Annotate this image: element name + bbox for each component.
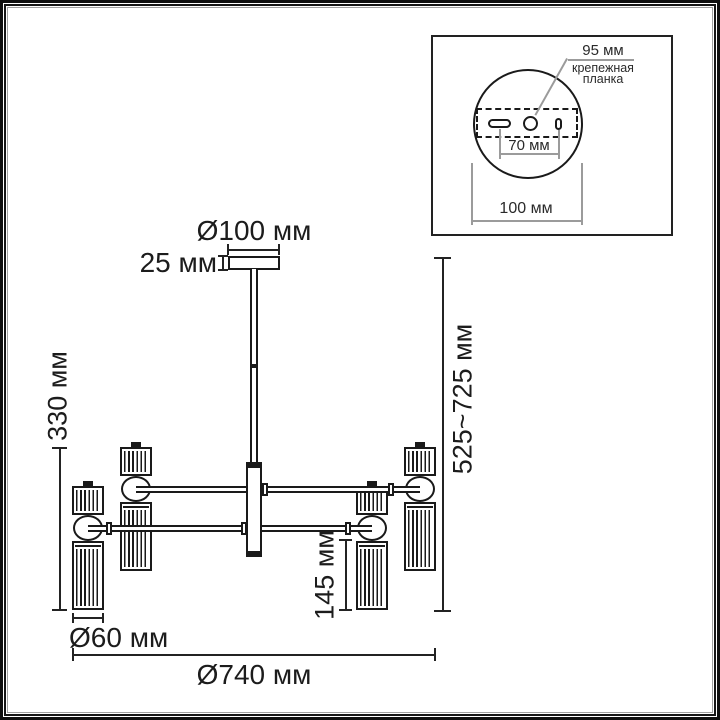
ceiling-canopy xyxy=(228,256,280,270)
dim-tick xyxy=(339,539,352,541)
lamp-stack-outer-left xyxy=(72,481,104,611)
dim-line-canopy-diameter xyxy=(228,249,280,251)
lamp-shade-top xyxy=(120,447,152,476)
dim-line-body-height xyxy=(59,448,61,611)
lamp-shade-top xyxy=(404,447,436,476)
dim-ibeam-line xyxy=(222,256,224,270)
dim-label-body-height: 330 мм xyxy=(45,351,72,441)
dimension-diagram: 95 мм крепежная планка 70 мм 100 мм xyxy=(0,0,720,720)
arm-lower xyxy=(88,525,372,532)
dim-label-hole: 95 мм xyxy=(568,43,638,58)
dim-tick xyxy=(434,257,451,259)
dim-label-slot-spacing: 70 мм xyxy=(497,138,561,153)
dim-label-canopy-diameter: Ø100 мм xyxy=(154,217,354,245)
dim-tick xyxy=(434,610,451,612)
dim-line-overall-height xyxy=(442,258,444,612)
dim-label-shade-length: 145 мм xyxy=(312,530,339,620)
dim-tick xyxy=(339,609,352,611)
shade-ribs xyxy=(408,451,432,472)
lamp-stack-inner-left xyxy=(120,442,152,572)
arm-joint-collar xyxy=(106,522,112,535)
lamp-shade-bottom xyxy=(404,502,436,571)
mount-slot-left-icon xyxy=(488,119,511,128)
lamp-shade-top xyxy=(72,486,104,515)
ext-line-100-left xyxy=(471,163,473,225)
ext-line-100-right xyxy=(581,163,583,225)
dim-line-overall-width xyxy=(73,654,435,656)
dim-tick xyxy=(72,648,74,661)
dim-label-overall-height: 525~725 мм xyxy=(450,324,477,475)
rod-joint xyxy=(250,364,258,368)
dim-line-100 xyxy=(471,220,582,222)
shade-ribs xyxy=(76,490,100,511)
lamp-shade-bottom xyxy=(72,541,104,610)
dim-tick xyxy=(52,447,67,449)
dim-tick xyxy=(434,648,436,661)
arm-joint-collar xyxy=(345,522,351,535)
mount-plate-label: крепежная планка xyxy=(565,63,641,84)
dim-line-shade-length xyxy=(345,540,347,611)
mount-center-hole-icon xyxy=(523,116,538,131)
dim-label-canopy-height: 25 мм xyxy=(103,249,217,277)
lamp-shade-bottom xyxy=(120,502,152,571)
lamp-shade-bottom xyxy=(356,541,388,610)
shade-ribs xyxy=(360,549,384,606)
dim-label-overall-width: Ø740 мм xyxy=(154,661,354,689)
arm-joint-collar xyxy=(262,483,268,496)
mount-slot-right-icon xyxy=(555,118,562,130)
shade-ribs xyxy=(124,510,148,567)
dim-ibeam-tick xyxy=(218,269,228,271)
hub-cap-bottom xyxy=(246,551,262,557)
dim-label-shade-diameter: Ø60 мм xyxy=(69,624,168,652)
shade-ribs xyxy=(76,549,100,606)
dim-ibeam-tick xyxy=(218,255,228,257)
hub-cap-top xyxy=(246,462,262,468)
arm-joint-collar xyxy=(388,483,394,496)
central-hub xyxy=(246,462,262,557)
dim-label-base-width: 100 мм xyxy=(486,201,566,217)
dim-tick xyxy=(52,609,67,611)
arm-upper xyxy=(136,486,420,493)
shade-ribs xyxy=(360,490,384,511)
shade-ribs xyxy=(124,451,148,472)
dim-line-shade-diameter xyxy=(73,617,104,619)
lamp-stack-inner-right xyxy=(356,481,388,611)
lamp-stack-outer-right xyxy=(404,442,436,572)
shade-ribs xyxy=(408,510,432,567)
mount-detail-inset: 95 мм крепежная планка 70 мм 100 мм xyxy=(431,35,673,236)
